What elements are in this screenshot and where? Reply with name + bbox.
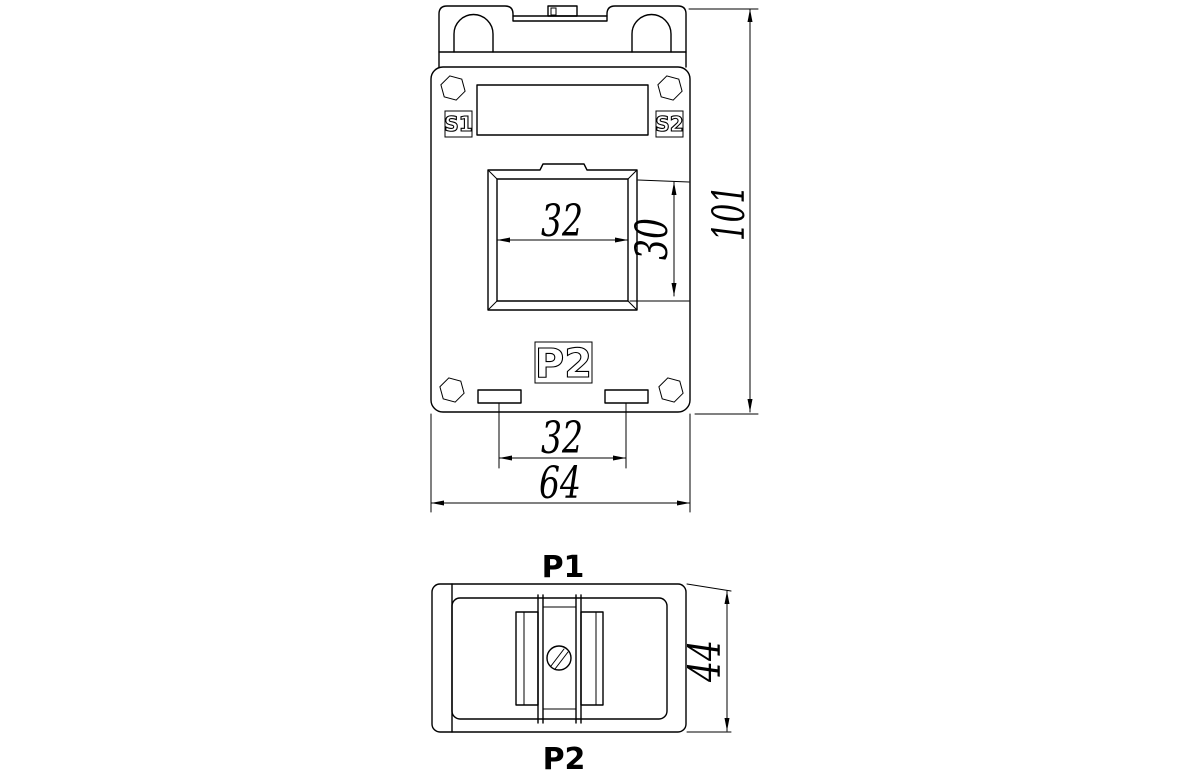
dimension-overall-height: 101: [689, 9, 758, 414]
nameplate: [477, 85, 648, 135]
arrow-right-icon: [677, 501, 690, 506]
dim-overall-height-text: 101: [704, 185, 755, 241]
arrow-up-icon: [725, 591, 730, 604]
s2-label: S2: [655, 112, 683, 136]
screw-bottom-left-icon: [440, 378, 464, 402]
drawing-canvas: S1 S2 P2 32 30 101: [0, 0, 1185, 777]
arrow-up-icon: [748, 9, 753, 22]
arrow-left-icon: [497, 238, 510, 243]
window-chamfer-bl: [488, 301, 497, 310]
screw-bottom-right-icon: [659, 378, 683, 402]
arrow-down-icon: [725, 718, 730, 731]
dimension-window-width: 32: [497, 196, 628, 247]
dim-window-height-text: 30: [627, 218, 678, 260]
window-chamfer-tr: [628, 170, 637, 179]
clamp-screw-icon: [547, 646, 571, 670]
terminal-block-left: [516, 612, 538, 705]
side-body-outline: [432, 584, 686, 732]
arrow-down-icon: [672, 283, 677, 296]
ext-line-top: [687, 584, 731, 591]
p2-front-label: P2: [535, 341, 592, 387]
dim-depth-text: 44: [680, 640, 731, 683]
arrow-down-icon: [748, 399, 753, 412]
s1-label: S1: [444, 112, 472, 136]
tab-hole-left: [454, 15, 493, 53]
ext-line-top: [638, 180, 689, 182]
dim-overall-width-text: 64: [539, 458, 581, 509]
p2-side-label: P2: [543, 742, 586, 777]
p1-side-label: P1: [542, 550, 585, 585]
din-clip-bar: [513, 16, 607, 21]
side-inner-outline: [452, 598, 667, 719]
dim-slot-spacing-text: 32: [541, 413, 583, 464]
ct-dimension-drawing: S1 S2 P2 32 30 101: [0, 0, 1185, 777]
tab-hole-right: [632, 15, 671, 53]
arrow-left-icon: [499, 456, 512, 461]
arrow-left-icon: [431, 501, 444, 506]
side-view: P1 P2: [432, 550, 686, 777]
screw-top-left-icon: [441, 76, 465, 100]
screw-slot-line-1: [551, 649, 564, 666]
dim-window-width-text: 32: [541, 196, 583, 247]
arrow-up-icon: [672, 182, 677, 195]
din-clip-notch: [551, 8, 556, 15]
window-chamfer-tl: [488, 170, 497, 179]
mounting-slot-right: [605, 390, 648, 403]
window-chamfer-br: [628, 301, 637, 310]
arrow-right-icon: [613, 456, 626, 461]
screw-slot-line-2: [555, 652, 568, 669]
screw-top-right-icon: [658, 76, 682, 100]
dimension-depth: 44: [680, 584, 731, 732]
mounting-slot-left: [478, 390, 521, 403]
terminal-block-right: [581, 612, 603, 705]
